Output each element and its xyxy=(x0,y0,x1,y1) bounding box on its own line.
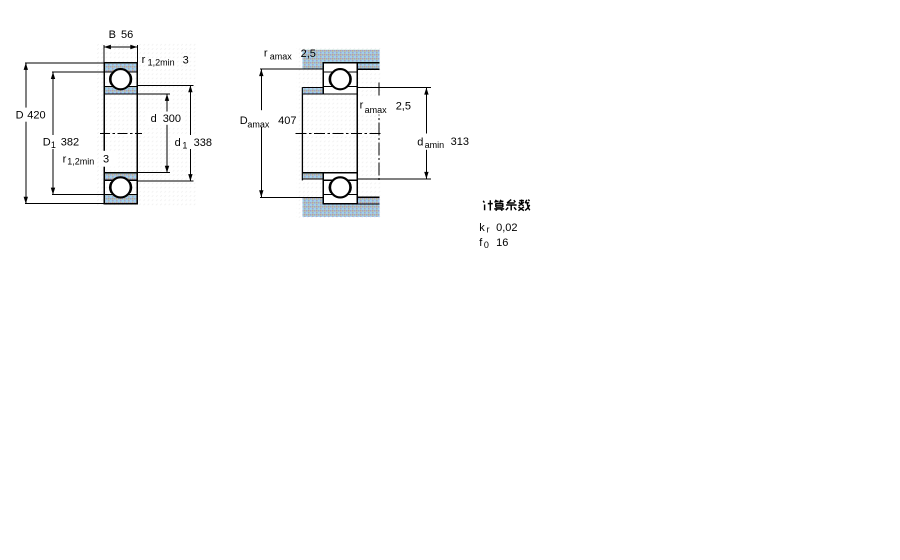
svg-text:k: k xyxy=(479,222,485,234)
svg-text:2,5: 2,5 xyxy=(396,100,411,112)
svg-text:1: 1 xyxy=(51,140,56,150)
svg-text:3: 3 xyxy=(183,54,189,66)
svg-text:2,5: 2,5 xyxy=(301,48,316,60)
svg-text:B: B xyxy=(109,29,116,41)
svg-text:313: 313 xyxy=(451,136,469,148)
svg-text:r: r xyxy=(487,224,490,234)
svg-text:amax: amax xyxy=(270,51,293,61)
svg-text:16: 16 xyxy=(496,237,508,249)
svg-text:amax: amax xyxy=(247,119,270,129)
svg-text:1,2min: 1,2min xyxy=(67,157,94,167)
svg-text:300: 300 xyxy=(163,113,181,125)
svg-text:407: 407 xyxy=(278,115,296,127)
svg-text:r: r xyxy=(142,54,146,66)
svg-text:0,02: 0,02 xyxy=(496,222,517,234)
svg-text:56: 56 xyxy=(121,29,133,41)
svg-text:0: 0 xyxy=(484,240,489,250)
svg-text:r: r xyxy=(360,100,364,112)
svg-text:420: 420 xyxy=(27,110,45,122)
svg-text:r: r xyxy=(264,48,268,60)
svg-text:3: 3 xyxy=(103,154,109,166)
svg-text:1: 1 xyxy=(182,141,187,151)
svg-text:338: 338 xyxy=(194,137,212,149)
svg-text:d: d xyxy=(151,113,157,125)
svg-text:d: d xyxy=(417,137,423,149)
svg-text:r: r xyxy=(63,153,67,165)
svg-text:382: 382 xyxy=(61,136,79,148)
svg-text:1,2min: 1,2min xyxy=(148,58,175,68)
svg-text:d: d xyxy=(175,137,181,149)
svg-text:amin: amin xyxy=(425,140,445,150)
svg-text:D: D xyxy=(16,110,24,122)
svg-text:D: D xyxy=(43,136,51,148)
svg-text:amax: amax xyxy=(365,105,388,115)
